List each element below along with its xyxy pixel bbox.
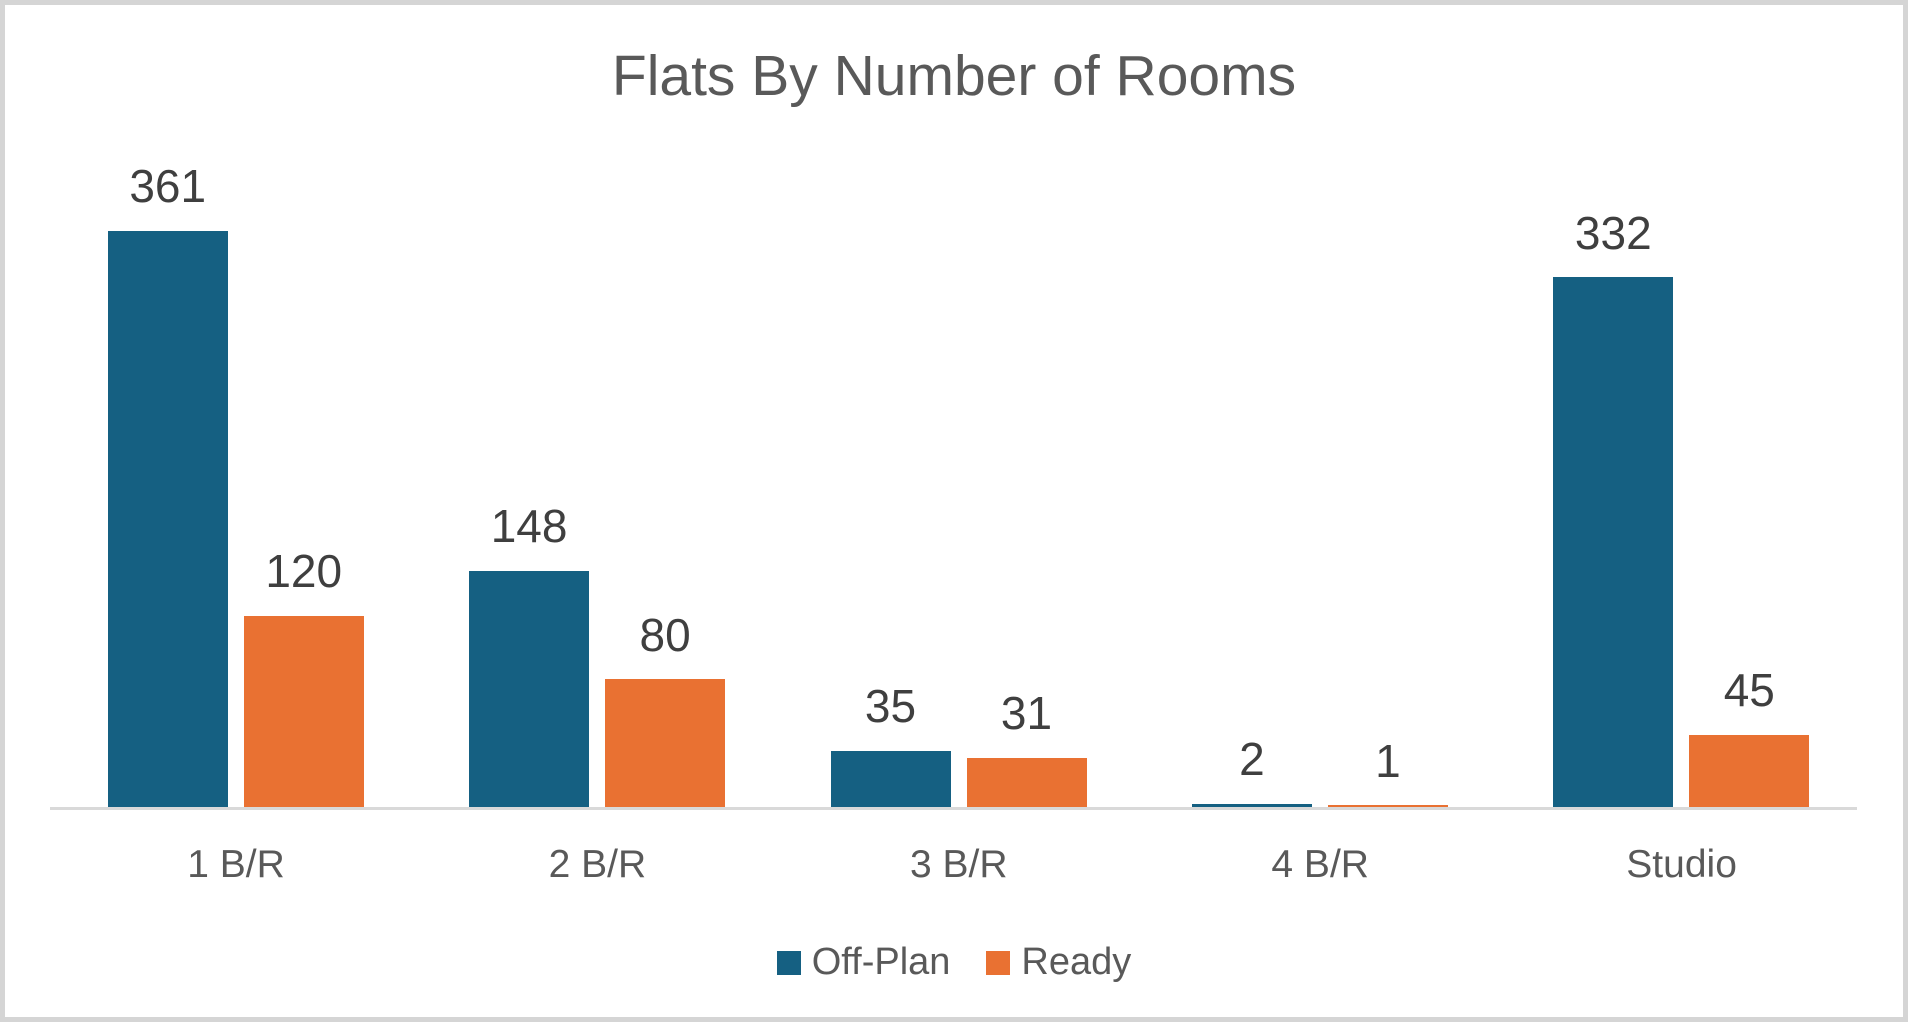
legend-swatch-ready xyxy=(986,951,1010,975)
chart-frame: Flats By Number of Rooms 361120148803531… xyxy=(0,0,1908,1022)
x-axis-label-4-b-r: 4 B/R xyxy=(1139,843,1501,887)
x-axis-label-2-b-r: 2 B/R xyxy=(416,843,778,887)
x-axis-label-1-b-r: 1 B/R xyxy=(55,843,417,887)
data-label-ready-1-b-r: 120 xyxy=(204,545,404,598)
legend-item-ready: Ready xyxy=(986,941,1131,984)
bar-ready-3-b-r xyxy=(967,758,1087,807)
bar-ready-2-b-r xyxy=(605,679,725,807)
bar-off-plan-4-b-r xyxy=(1192,804,1312,807)
bar-off-plan-2-b-r xyxy=(469,571,589,807)
bar-off-plan-3-b-r xyxy=(831,751,951,807)
x-axis-line xyxy=(50,807,1857,810)
x-axis-label-studio: Studio xyxy=(1501,843,1863,887)
bar-off-plan-studio xyxy=(1553,277,1673,807)
data-label-off-plan-1-b-r: 361 xyxy=(68,160,268,213)
x-axis-label-3-b-r: 3 B/R xyxy=(778,843,1140,887)
bar-off-plan-1-b-r xyxy=(108,231,228,807)
data-label-ready-3-b-r: 31 xyxy=(927,687,1127,740)
bar-ready-studio xyxy=(1689,735,1809,807)
bar-ready-4-b-r xyxy=(1328,805,1448,807)
legend-item-off-plan: Off-Plan xyxy=(777,941,951,984)
bar-ready-1-b-r xyxy=(244,616,364,807)
legend-label-ready: Ready xyxy=(1021,941,1131,984)
data-label-off-plan-studio: 332 xyxy=(1513,207,1713,260)
plot-area: 3611201488035312133245 1 B/R2 B/R3 B/R4 … xyxy=(5,5,1903,1017)
legend-label-off-plan: Off-Plan xyxy=(812,941,951,984)
legend: Off-PlanReady xyxy=(5,941,1903,984)
data-label-off-plan-2-b-r: 148 xyxy=(429,500,629,553)
legend-swatch-off-plan xyxy=(777,951,801,975)
data-label-ready-2-b-r: 80 xyxy=(565,609,765,662)
data-label-ready-studio: 45 xyxy=(1649,664,1849,717)
data-label-ready-4-b-r: 1 xyxy=(1288,735,1488,788)
